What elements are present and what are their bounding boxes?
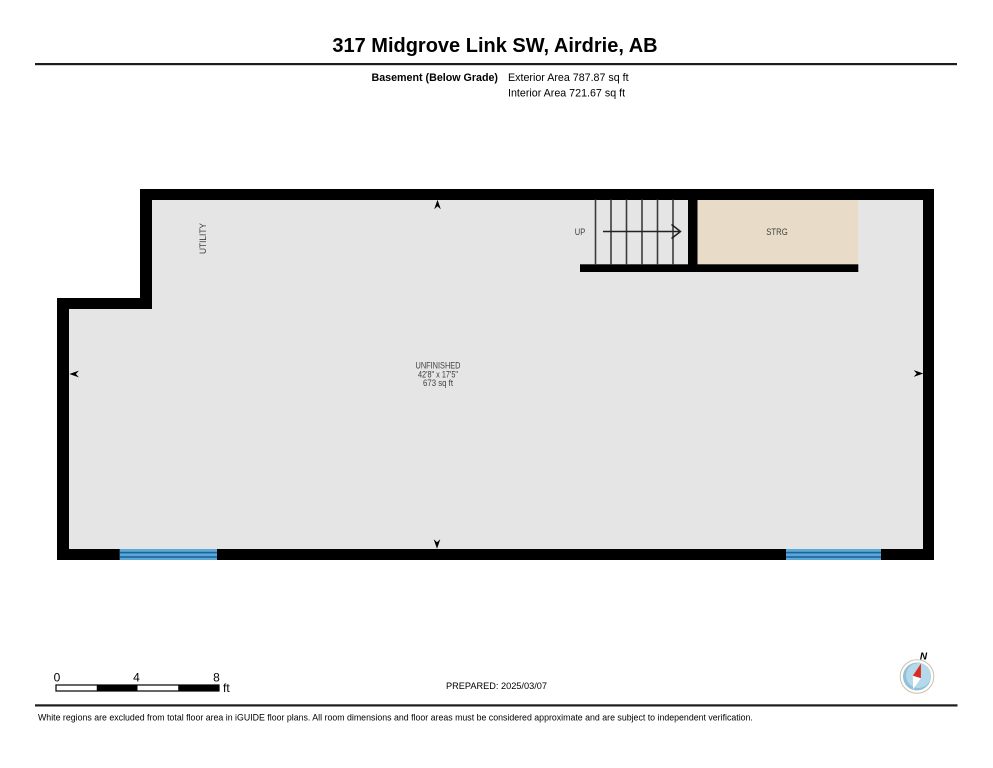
svg-text:Exterior Area 787.87 sq ft: Exterior Area 787.87 sq ft: [508, 72, 629, 84]
svg-text:STRG: STRG: [766, 227, 788, 237]
svg-text:4: 4: [133, 671, 140, 685]
svg-text:PREPARED: 2025/03/07: PREPARED: 2025/03/07: [446, 681, 547, 691]
svg-text:317 Midgrove Link SW, Airdrie,: 317 Midgrove Link SW, Airdrie, AB: [332, 35, 657, 57]
svg-text:N: N: [920, 652, 928, 663]
svg-text:673 sq ft: 673 sq ft: [423, 378, 453, 388]
svg-text:Interior Area 721.67 sq ft: Interior Area 721.67 sq ft: [508, 88, 625, 100]
svg-text:ft: ft: [223, 681, 230, 695]
svg-text:White regions are excluded fro: White regions are excluded from total fl…: [38, 713, 753, 723]
svg-text:8: 8: [213, 671, 220, 685]
svg-text:0: 0: [54, 671, 61, 685]
svg-text:UP: UP: [575, 227, 586, 237]
svg-text:Basement (Below Grade): Basement (Below Grade): [371, 72, 498, 84]
svg-text:UTILITY: UTILITY: [198, 223, 208, 254]
